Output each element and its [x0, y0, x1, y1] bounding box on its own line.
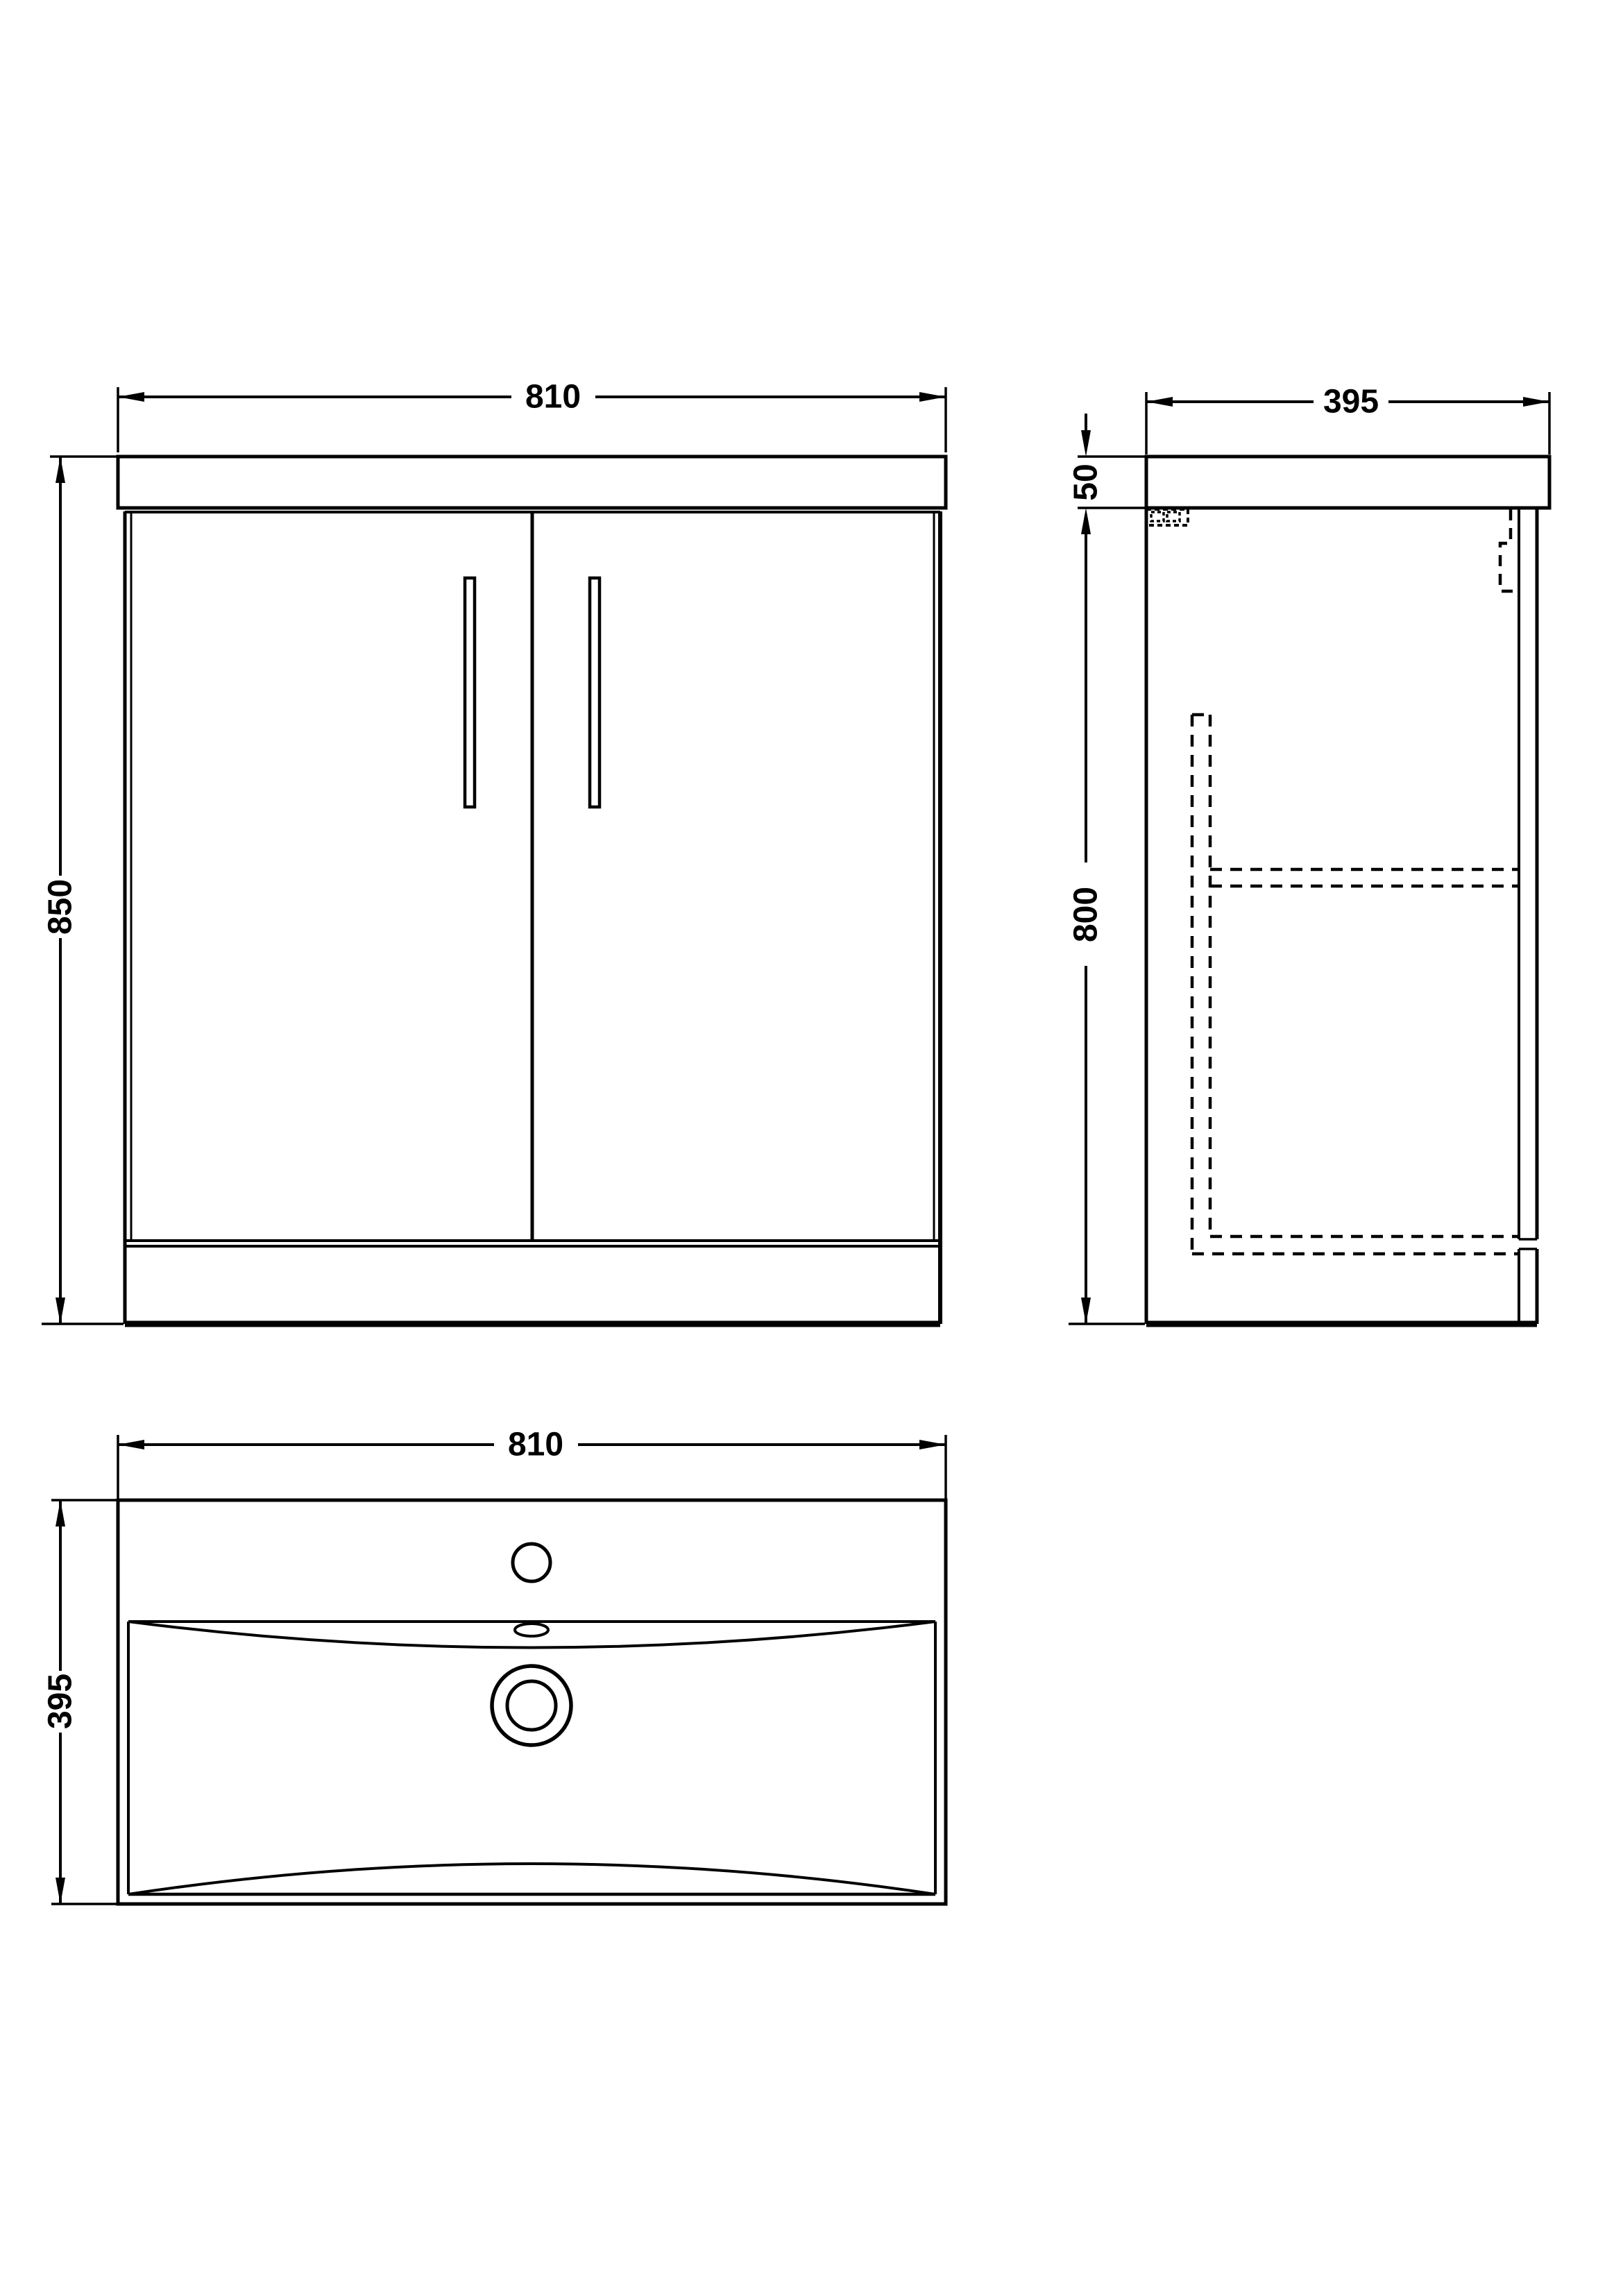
- tap-hole: [513, 1544, 550, 1581]
- side-depth-dimension: 395: [1146, 384, 1549, 455]
- bowl-front-wall-curve: [128, 1864, 935, 1894]
- arrowhead-top: [56, 457, 65, 483]
- front-width-label: 810: [525, 379, 581, 416]
- front-left-door-handle: [465, 578, 475, 807]
- arrowhead-right: [919, 1440, 946, 1449]
- side-depth-label: 395: [1323, 384, 1379, 420]
- basin-depth-label: 395: [42, 1674, 79, 1729]
- front-elevation-view: 810 850: [42, 379, 946, 1325]
- basin-width-dimension: 810: [118, 1427, 946, 1499]
- front-width-dimension: 810: [118, 379, 946, 453]
- basin-plan-view: 810 395: [42, 1427, 946, 1905]
- side-hinge-plate-hidden: [1146, 509, 1188, 525]
- arrowhead-top: [56, 1500, 65, 1527]
- arrowhead-left: [1146, 397, 1173, 407]
- basin-depth-dimension: 395: [42, 1500, 117, 1904]
- vanity-unit-drawing: 810 850: [0, 0, 1623, 2296]
- overflow-hole: [515, 1624, 548, 1636]
- front-height-dimension: 850: [42, 457, 124, 1324]
- side-internal-upright-hidden: [1192, 715, 1210, 1254]
- arrowhead-left: [118, 1440, 144, 1449]
- cabinet-height-dimension: 800: [1068, 534, 1146, 1324]
- side-rear-bracket-hidden: [1500, 509, 1519, 591]
- technical-drawing-canvas: 810 850: [0, 0, 1623, 2296]
- arrowhead-down: [1081, 430, 1091, 457]
- worktop-thickness-dimension: 50: [1068, 414, 1146, 534]
- side-middle-shelf-hidden: [1210, 869, 1519, 886]
- hinge-inner-left: [1151, 512, 1164, 521]
- side-bottom-shelf-hidden: [1192, 1236, 1519, 1254]
- side-worktop: [1146, 457, 1549, 508]
- cabinet-height-label: 800: [1068, 887, 1105, 942]
- arrowhead-left: [118, 392, 144, 402]
- front-height-label: 850: [42, 879, 79, 935]
- arrowhead-bottom: [1081, 1298, 1091, 1324]
- basin-width-label: 810: [508, 1427, 563, 1463]
- side-elevation-view: 395 50 800: [1068, 384, 1550, 1325]
- arrowhead-right: [919, 392, 946, 402]
- arrowhead-up: [1081, 508, 1091, 534]
- arrowhead-right: [1523, 397, 1549, 407]
- waste-outer-ring: [492, 1666, 571, 1745]
- front-right-door-handle: [590, 578, 600, 807]
- front-worktop: [118, 457, 946, 508]
- hinge-inner-right: [1167, 512, 1180, 521]
- arrowhead-bottom: [56, 1298, 65, 1324]
- arrowhead-bottom: [56, 1878, 65, 1904]
- worktop-thickness-label: 50: [1068, 464, 1105, 500]
